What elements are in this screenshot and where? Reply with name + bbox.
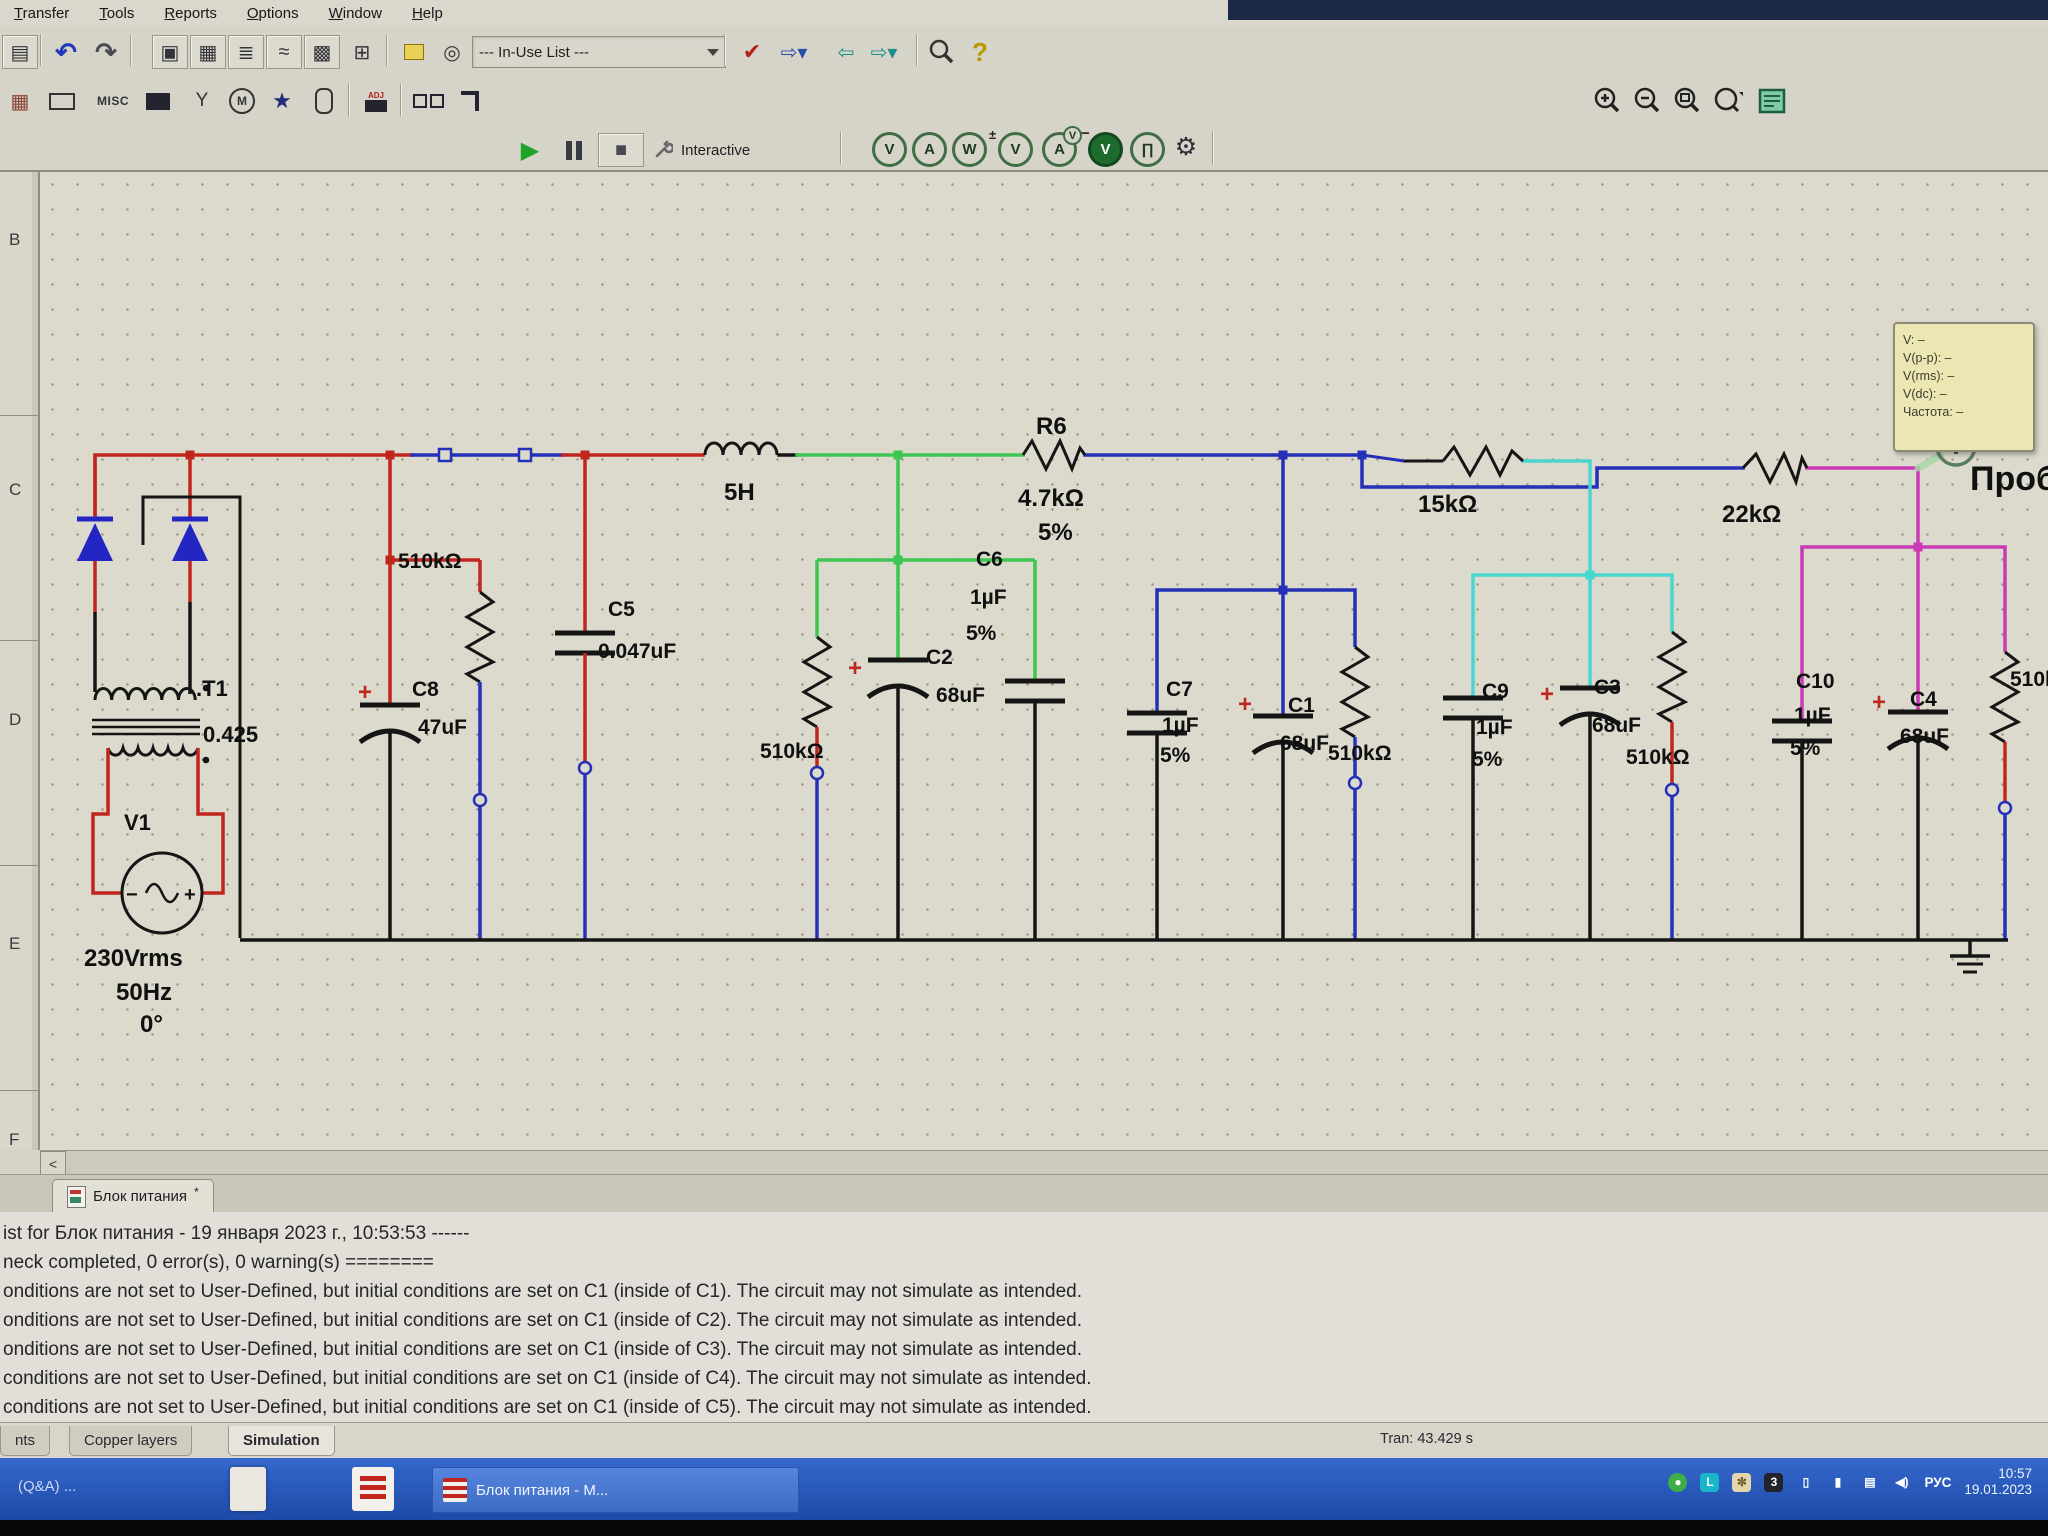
component-label: 0.425: [203, 722, 258, 747]
component-label: 22kΩ: [1722, 501, 1781, 528]
zoom-in-icon[interactable]: [1592, 86, 1624, 116]
tab-simulation[interactable]: Simulation: [228, 1426, 335, 1456]
component-label: 1µF: [1476, 716, 1513, 739]
differential-voltage-probe-button[interactable]: ±V: [998, 132, 1033, 167]
voltage-reference-probe-button[interactable]: −V: [1088, 132, 1123, 167]
multisim-logo: [360, 1476, 386, 1502]
device-icon[interactable]: ▮: [1828, 1473, 1847, 1492]
component-label: 0°: [140, 1011, 163, 1038]
block-glyph: [413, 94, 427, 108]
chip-body: [365, 100, 387, 112]
separator: [130, 34, 131, 66]
component-label: C9: [1482, 680, 1509, 703]
components-toolbar: ▦ MISC Y M ★ ADJ: [0, 78, 2048, 125]
component-resistor-510k-5[interactable]: [1992, 547, 2018, 940]
component-label: +: [184, 884, 196, 906]
adj-label: ADJ: [368, 91, 384, 100]
component-label: 68uF: [1592, 714, 1641, 737]
component-label: 50Hz: [116, 979, 172, 1006]
component-resistor-22k[interactable]: [1743, 454, 1807, 482]
hierarchical-block-icon[interactable]: [410, 84, 446, 118]
component-inductor-5h[interactable]: [705, 443, 777, 455]
spreadsheet-view-icon[interactable]: ▦: [190, 35, 226, 69]
tray-green-app-icon[interactable]: ●: [1668, 1473, 1687, 1492]
component-label: 68uF: [936, 684, 985, 707]
results-tab-strip: Tran: 43.429 s ntsCopper layersSimulatio…: [0, 1422, 2048, 1459]
dirty-marker: *: [194, 1185, 199, 1199]
fullscreen-icon[interactable]: [1756, 86, 1788, 116]
language-indicator[interactable]: РУС: [1924, 1475, 1951, 1490]
component-label: C5: [608, 598, 635, 621]
diode-triangle: [77, 523, 113, 561]
paste-icon[interactable]: ▤: [2, 35, 38, 69]
wire-green-node[interactable]: [817, 455, 1035, 560]
log-line: onditions are not set to User-Defined, b…: [0, 1335, 2048, 1364]
wire-top-rail[interactable]: [95, 455, 2005, 575]
bus-icon[interactable]: [452, 84, 488, 118]
interactive-label: Interactive: [681, 142, 750, 159]
wire-ground-rail[interactable]: [240, 940, 2008, 972]
find-icon[interactable]: [926, 37, 958, 67]
component-label: +: [1238, 691, 1252, 718]
misc-component-icon[interactable]: MISC: [88, 84, 138, 118]
component-resistor-r6[interactable]: [1023, 441, 1085, 469]
run-simulation-button[interactable]: ▶: [512, 133, 548, 167]
motor-glyph: M: [229, 88, 255, 114]
undo-icon[interactable]: ↶: [48, 35, 84, 69]
component-transformer-t1[interactable]: [92, 497, 240, 938]
component-label: 68uF: [1280, 732, 1329, 755]
component-label: R6: [1036, 413, 1067, 440]
component-label: 5%: [1472, 748, 1503, 771]
separator: [400, 84, 401, 116]
tooltip-line: V: –: [1903, 331, 2025, 349]
component-label: +: [848, 655, 862, 682]
design-tab-label: Блок питания: [93, 1188, 187, 1205]
wizard-icon[interactable]: [396, 35, 432, 69]
wizard-glyph: [404, 44, 424, 60]
tray-l-app-icon[interactable]: L: [1700, 1473, 1719, 1492]
log-line: ist for Блок питания - 19 января 2023 г.…: [0, 1219, 2048, 1248]
tab-copper-layers[interactable]: Copper layers: [69, 1426, 192, 1456]
voltage-current-probe-button[interactable]: VA: [1042, 132, 1077, 167]
forwardannotate-icon[interactable]: ⇨▾: [866, 35, 902, 69]
design-tab-strip: Блок питания *: [0, 1174, 2048, 1213]
redo-icon[interactable]: ↷: [88, 35, 124, 69]
schematic-svg[interactable]: V: [0, 172, 2048, 1150]
grapher-icon[interactable]: ≈: [266, 35, 302, 69]
taskbar-active-task[interactable]: Блок питания - M...: [432, 1467, 799, 1513]
hierarchy-icon[interactable]: ⊞: [344, 35, 380, 69]
component-label: −: [126, 884, 138, 906]
current-probe-button[interactable]: A: [912, 132, 947, 167]
menu-tools[interactable]: Tools: [99, 5, 134, 22]
component-label: C6: [976, 548, 1003, 571]
windows-taskbar: (Q&A) ... Блок питания - M... ● L ✼ 3 ▯ …: [0, 1458, 2048, 1520]
interactive-analysis-button[interactable]: Interactive: [652, 133, 814, 167]
component-label: 5%: [966, 622, 997, 645]
analog-component-icon[interactable]: Y: [184, 84, 220, 118]
tooltip-line: V(rms): –: [1903, 367, 2025, 385]
tray-bird-icon[interactable]: ✼: [1732, 1473, 1751, 1492]
in-use-list-value: --- In-Use List ---: [479, 44, 589, 61]
component-label: 15kΩ: [1418, 491, 1477, 518]
tray-dark-app-icon[interactable]: 3: [1764, 1473, 1783, 1492]
component-diode-d2[interactable]: [172, 455, 208, 694]
component-label: 510kΩ: [398, 550, 462, 573]
log-line: conditions are not set to User-Defined, …: [0, 1393, 2048, 1422]
network-icon[interactable]: ▤: [1860, 1473, 1879, 1492]
sheet-icon: [67, 1186, 86, 1208]
component-label: 230Vrms: [84, 945, 183, 972]
diode-triangle: [172, 523, 208, 561]
clock-time: 10:57: [1964, 1466, 2032, 1482]
zoom-out-icon[interactable]: [1632, 86, 1664, 116]
component-label: Проб: [1970, 460, 2048, 498]
tooltip-line: Частота: –: [1903, 403, 2025, 421]
component-label: C1: [1288, 694, 1315, 717]
multisim-mini-icon: [443, 1478, 467, 1502]
component-labels: .T10.425V1230Vrms50Hz0°−+510kΩC50.047uFC…: [84, 413, 2048, 1038]
tooltip-line: V(p-p): –: [1903, 349, 2025, 367]
separator: [1212, 132, 1213, 164]
component-label: +: [1872, 689, 1886, 716]
block-glyph: [430, 94, 444, 108]
erc-check-icon[interactable]: ✔: [734, 35, 770, 69]
main-toolbar: ▤ ↶ ↷ ▣ ▦ ≣ ≈ ▩ ⊞ ◎ --- In-Use List --- …: [0, 26, 2048, 79]
v-badge: V: [1063, 126, 1082, 145]
scroll-left-arrow[interactable]: <: [40, 1151, 66, 1176]
electromechanical-icon[interactable]: M: [224, 84, 260, 118]
bus-glyph: [461, 91, 479, 111]
menu-help[interactable]: Help: [412, 5, 443, 22]
component-source-v1[interactable]: [93, 748, 223, 933]
battery-glyph: [49, 93, 75, 110]
component-capacitor-c3[interactable]: [1560, 575, 1620, 940]
spice-netlist-icon[interactable]: ≣: [228, 35, 264, 69]
component-label: V1: [124, 810, 151, 835]
taskbar-clock[interactable]: 10:57 19.01.2023: [1964, 1466, 2032, 1498]
component-label: 5%: [1790, 737, 1821, 760]
log-line: onditions are not set to User-Defined, b…: [0, 1277, 2048, 1306]
adj-chip-icon[interactable]: ADJ: [358, 84, 394, 118]
component-label: 1µF: [970, 586, 1007, 609]
monitor-bezel-bottom: [0, 1520, 2048, 1536]
component-label: C10: [1796, 670, 1835, 693]
connector-glyph: [315, 88, 333, 114]
separator: [724, 34, 725, 66]
component-label: C3: [1594, 676, 1621, 699]
clock-date: 19.01.2023: [1964, 1482, 2032, 1498]
separator: [840, 132, 841, 164]
active-task-label: Блок питания - M...: [476, 1482, 608, 1499]
postprocessor-icon[interactable]: ▩: [304, 35, 340, 69]
component-capacitor-c2[interactable]: [868, 560, 928, 940]
component-resistor-15k[interactable]: [1404, 447, 1523, 475]
component-label: 68uF: [1900, 725, 1949, 748]
component-label: +: [358, 679, 372, 706]
log-line: onditions are not set to User-Defined, b…: [0, 1306, 2048, 1335]
component-label: C4: [1910, 688, 1937, 711]
component-capacitor-c5[interactable]: [555, 455, 615, 940]
component-label: 510kΩ: [2010, 668, 2048, 691]
usb-icon[interactable]: ▯: [1796, 1473, 1815, 1492]
component-capacitor-c7[interactable]: [1127, 590, 1283, 940]
menu-options[interactable]: Options: [247, 5, 299, 22]
component-resistor-510k-3[interactable]: [1283, 590, 1368, 940]
system-tray: ● L ✼ 3 ▯ ▮ ▤ ◀) РУС 10:57 19.01.2023: [1668, 1466, 2032, 1498]
separator: [916, 34, 917, 66]
voltage-probe-button[interactable]: V: [872, 132, 907, 167]
power-probe-button[interactable]: W: [952, 132, 987, 167]
separator: [386, 34, 387, 66]
component-label: C2: [926, 646, 953, 669]
component-resistor-510k-1[interactable]: [390, 560, 493, 940]
tooltip-line: V(dc): –: [1903, 385, 2025, 403]
component-label: 0.047uF: [598, 640, 676, 663]
adj-glyph: ADJ: [365, 91, 387, 112]
ni-bird-icon[interactable]: ★: [264, 84, 300, 118]
digital-probe-button[interactable]: ∏: [1130, 132, 1165, 167]
separator: [40, 34, 41, 66]
taskbar-qa-label[interactable]: (Q&A) ...: [18, 1478, 76, 1495]
connector-icon[interactable]: [306, 84, 342, 118]
transient-time-status: Tran: 43.429 s: [1380, 1431, 1473, 1447]
component-label: .T1: [196, 676, 228, 701]
tab-nts[interactable]: nts: [0, 1426, 50, 1456]
tab-design-sheet[interactable]: Блок питания *: [52, 1179, 214, 1213]
export-ultiboard-icon[interactable]: ⇨▾: [776, 35, 812, 69]
component-label: 1µF: [1794, 704, 1831, 727]
wrench-icon: [653, 140, 673, 160]
simulation-toolbar: ▶ ■ Interactive V A W ±V VA −V ∏ ⚙: [0, 124, 2048, 172]
plusminus-glyph: ±: [989, 127, 996, 142]
separator: [348, 84, 349, 116]
component-label: 510kΩ: [1328, 742, 1392, 765]
power-source-icon[interactable]: [44, 84, 80, 118]
pause-simulation-button[interactable]: [556, 133, 592, 167]
multisim-window: TransferToolsReportsOptionsWindowHelp ▤ …: [0, 0, 2048, 1520]
taskbar-pinned-app[interactable]: [230, 1467, 266, 1511]
horizontal-scrollbar[interactable]: <: [40, 1150, 2048, 1175]
component-label: C7: [1166, 678, 1193, 701]
component-label: 5%: [1160, 744, 1191, 767]
chevron-down-icon: [707, 49, 719, 56]
component-diode-d1[interactable]: [77, 455, 113, 692]
in-use-list-dropdown[interactable]: --- In-Use List ---: [472, 36, 726, 68]
component-label: C8: [412, 678, 439, 701]
help-icon[interactable]: ?: [962, 35, 998, 69]
transistor-glyph: [146, 93, 170, 110]
menu-reports[interactable]: Reports: [164, 5, 217, 22]
component-label: 5%: [1038, 519, 1073, 546]
speaker-icon[interactable]: ◀): [1892, 1473, 1911, 1492]
backannotate-icon[interactable]: ⇦: [828, 35, 864, 69]
taskbar-multisim-icon[interactable]: [352, 1467, 394, 1511]
probe-readout-tooltip: V: –V(p-p): –V(rms): –V(dc): –Частота: –: [1893, 322, 2035, 452]
minus-glyph: −: [1081, 125, 1090, 142]
probe-settings-button[interactable]: ⚙: [1168, 130, 1204, 164]
zoom-fit-icon[interactable]: [1712, 86, 1744, 116]
simulation-log-panel: ist for Блок питания - 19 января 2023 г.…: [0, 1212, 2048, 1429]
monitor-bezel-top: [1228, 0, 2048, 20]
design-toolbox-icon[interactable]: ▣: [152, 35, 188, 69]
component-label: 4.7kΩ: [1018, 485, 1084, 512]
stop-simulation-button[interactable]: ■: [598, 133, 644, 167]
component-capacitor-c6[interactable]: [1005, 560, 1065, 940]
log-line: conditions are not set to User-Defined, …: [0, 1364, 2048, 1393]
component-label: 510kΩ: [1626, 746, 1690, 769]
component-label: 47uF: [418, 716, 467, 739]
database-manager-icon[interactable]: ◎: [434, 35, 470, 69]
log-line: neck completed, 0 error(s), 0 warning(s)…: [0, 1248, 2048, 1277]
menu-transfer[interactable]: Transfer: [14, 5, 69, 22]
component-label: +: [1540, 681, 1554, 708]
menu-window[interactable]: Window: [329, 5, 382, 22]
basic-component-icon[interactable]: ▦: [2, 84, 38, 118]
pause-glyph: [576, 141, 582, 160]
component-label: 1µF: [1162, 714, 1199, 737]
component-label: 510kΩ: [760, 740, 824, 763]
pause-glyph: [566, 141, 572, 160]
transistor-icon[interactable]: [140, 84, 176, 118]
component-label: 5H: [724, 479, 755, 506]
zoom-area-icon[interactable]: [1672, 86, 1704, 116]
